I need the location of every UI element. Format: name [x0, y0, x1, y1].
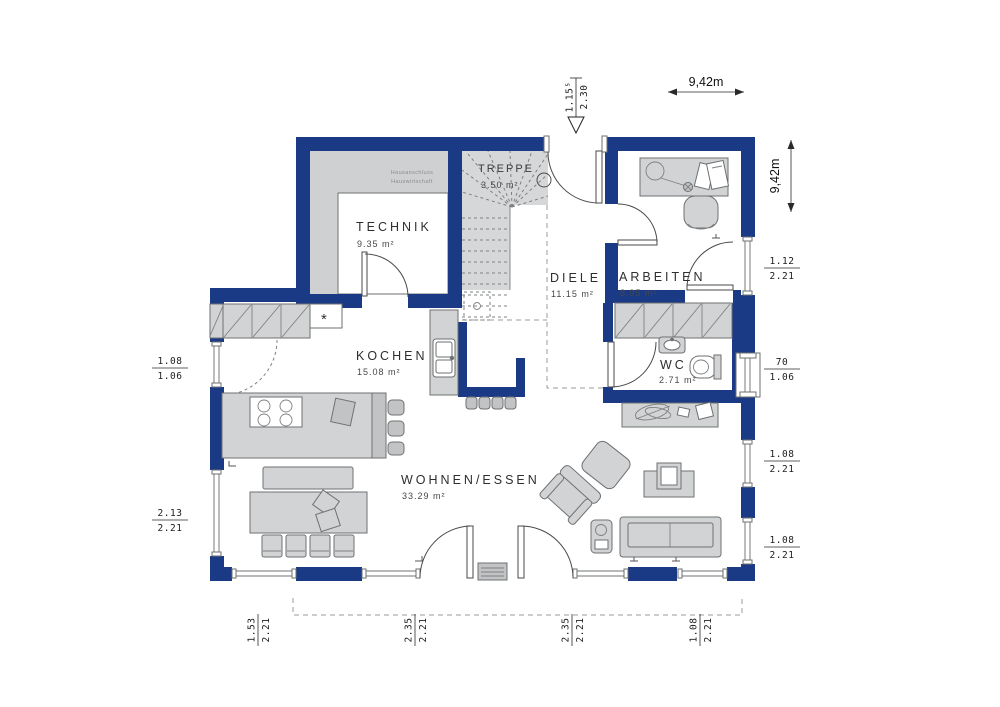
window-bottom-4 — [678, 567, 727, 581]
dining-table — [250, 492, 367, 533]
desk-papers — [694, 160, 728, 189]
svg-text:9,42m: 9,42m — [689, 75, 724, 89]
side-table — [591, 520, 612, 553]
bar-stool — [388, 421, 404, 436]
arbeiten-door — [618, 204, 657, 245]
sofa — [620, 517, 721, 557]
svg-text:2.21: 2.21 — [575, 618, 586, 643]
kochen-optional-door — [222, 338, 277, 395]
dim-left-0: 1.08 1.06 — [152, 356, 188, 382]
svg-text:1.06: 1.06 — [770, 372, 795, 383]
window-left-1 — [210, 342, 224, 387]
terrace-outline — [293, 598, 742, 615]
svg-text:1.08: 1.08 — [689, 618, 700, 643]
kitchen-sink-counter — [430, 310, 458, 395]
freezer-star-symbol: * — [321, 311, 327, 328]
technik-note-line2: Hauswirtschaft — [391, 179, 433, 185]
window-left-terrace-door — [210, 470, 224, 556]
window-right-1 — [741, 237, 755, 295]
svg-text:2.21: 2.21 — [770, 271, 795, 282]
wc-sink — [659, 337, 685, 353]
svg-text:2.21: 2.21 — [261, 618, 272, 643]
kitchen-wall-cabinets: * — [210, 304, 342, 338]
room-area-wc: 2.71 m² — [659, 375, 697, 385]
wardrobe — [615, 303, 732, 338]
window-right-wc — [736, 353, 760, 397]
svg-text:1.08: 1.08 — [158, 356, 183, 367]
tv-board — [644, 463, 694, 497]
svg-text:1.12: 1.12 — [770, 256, 795, 267]
dim-entrance: 1.15⁵ 2.30 — [565, 78, 591, 133]
room-area-technik: 9.35 m² — [357, 239, 395, 249]
window-bottom-1 — [232, 567, 296, 581]
dim-bottom-0: 1.53 2.21 — [247, 614, 273, 646]
svg-text:2.21: 2.21 — [703, 618, 714, 643]
window-bottom-2 — [362, 567, 420, 581]
technik-note-line1: Hausanschluss — [391, 170, 434, 176]
window-right-3 — [741, 518, 755, 564]
dining-chairs — [262, 535, 354, 557]
wc-door — [608, 342, 656, 387]
dim-right-1: 70 1.06 — [764, 357, 800, 383]
room-label-kochen: KOCHEN — [356, 349, 427, 363]
cooktop — [250, 397, 302, 427]
floorplan-drawing: * — [0, 0, 1000, 707]
dim-right-2: 1.08 2.21 — [764, 449, 800, 475]
office-furniture — [640, 158, 729, 229]
dim-bottom-3: 1.08 2.21 — [689, 614, 715, 646]
dim-right-3: 1.08 2.21 — [764, 535, 800, 561]
svg-text:9,42m: 9,42m — [768, 159, 782, 194]
room-area-kochen: 15.08 m² — [357, 367, 401, 377]
svg-text:2.35: 2.35 — [404, 618, 415, 643]
svg-text:2.21: 2.21 — [770, 464, 795, 475]
svg-text:2.21: 2.21 — [418, 618, 429, 643]
svg-text:2.21: 2.21 — [770, 550, 795, 561]
living-furniture — [539, 439, 721, 557]
svg-text:1.06: 1.06 — [158, 371, 183, 382]
room-area-diele: 11.15 m² — [551, 289, 594, 299]
room-area-arbeiten: 8.95 m² — [620, 288, 658, 298]
window-right-2 — [741, 440, 755, 487]
room-label-diele: DIELE — [550, 271, 601, 285]
doormat — [478, 563, 507, 580]
dim-right-0: 1.12 2.21 — [764, 256, 800, 282]
terrace-door-right — [518, 526, 573, 578]
dining-bench — [263, 467, 353, 489]
room-label-technik: TECHNIK — [356, 220, 432, 234]
dim-overall-right: 9,42m — [768, 140, 795, 212]
dim-bottom-2: 2.35 2.21 — [561, 614, 587, 646]
room-area-treppe: 3.50 m² — [481, 180, 519, 190]
floorplan-page: * — [0, 0, 1000, 707]
bar-stool — [388, 400, 404, 415]
dim-bottom-1: 2.35 2.21 — [404, 614, 430, 646]
hall-stool-row — [466, 397, 516, 409]
kitchen-furniture: * — [210, 304, 516, 458]
svg-text:2.30: 2.30 — [579, 85, 590, 110]
room-label-wc: WC — [660, 358, 687, 372]
room-label-treppe: TREPPE — [478, 163, 534, 175]
window-bottom-3 — [573, 567, 628, 581]
svg-text:1.08: 1.08 — [770, 535, 795, 546]
svg-text:1.53: 1.53 — [247, 618, 258, 643]
room-area-wohnen: 33.29 m² — [402, 491, 446, 501]
svg-text:1.15⁵: 1.15⁵ — [565, 81, 576, 112]
svg-text:2.13: 2.13 — [158, 508, 183, 519]
svg-text:70: 70 — [776, 357, 788, 368]
svg-text:1.08: 1.08 — [770, 449, 795, 460]
dim-left-1: 2.13 2.21 — [152, 508, 188, 534]
svg-text:2.35: 2.35 — [561, 618, 572, 643]
hall-sideboard — [622, 401, 718, 427]
cutting-board — [331, 398, 356, 426]
room-label-arbeiten: ARBEITEN — [619, 270, 706, 284]
entrance-door — [544, 136, 607, 203]
room-label-wohnen: WOHNEN/ESSEN — [401, 473, 540, 487]
desk-chair — [684, 196, 718, 229]
svg-text:2.21: 2.21 — [158, 523, 183, 534]
bar-counter — [372, 393, 386, 458]
dim-overall-top: 9,42m — [668, 75, 744, 96]
dining-furniture — [250, 467, 367, 557]
kitchen-island — [222, 393, 404, 458]
bar-stool — [388, 442, 404, 455]
terrace-door-left — [420, 526, 473, 578]
